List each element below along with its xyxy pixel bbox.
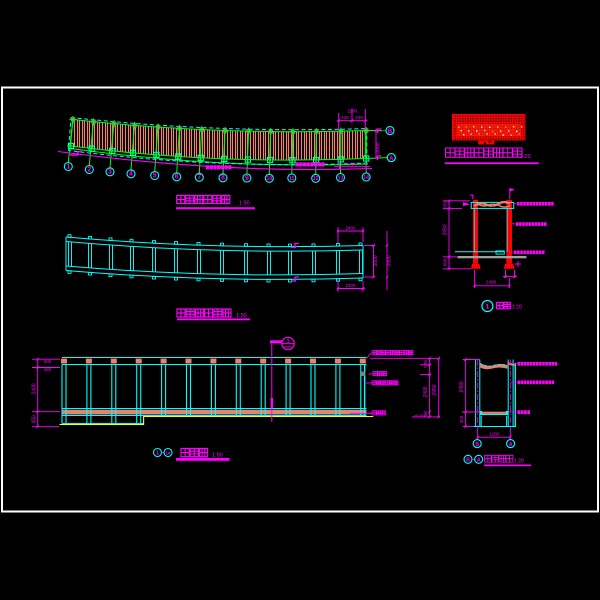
svg-text:500: 500 [44, 359, 52, 364]
svg-text:240: 240 [355, 115, 363, 120]
svg-text:13: 13 [338, 175, 344, 181]
svg-text:2950: 2950 [432, 384, 438, 395]
svg-text:3000: 3000 [373, 255, 379, 266]
svg-text:500: 500 [423, 360, 428, 368]
svg-text:1200: 1200 [489, 431, 500, 436]
svg-text:11: 11 [289, 176, 295, 182]
svg-text:6: 6 [175, 174, 179, 181]
svg-text:±0.000: ±0.000 [414, 414, 427, 419]
svg-text:2400: 2400 [345, 226, 356, 231]
svg-text:A: A [509, 442, 513, 448]
svg-text:4: 4 [129, 171, 133, 178]
svg-text:8: 8 [221, 175, 225, 182]
svg-text:1200: 1200 [347, 109, 358, 114]
svg-text:A: A [477, 458, 481, 464]
svg-text:450: 450 [32, 415, 38, 424]
svg-text:350: 350 [459, 415, 464, 423]
svg-text:1:50: 1:50 [236, 313, 247, 319]
svg-text:14: 14 [165, 451, 171, 456]
svg-text:2400: 2400 [345, 283, 356, 288]
svg-text:2: 2 [87, 166, 91, 173]
svg-text:2450: 2450 [442, 224, 448, 235]
svg-text:240: 240 [341, 115, 349, 120]
svg-text:1:50: 1:50 [212, 453, 223, 459]
svg-text:9: 9 [245, 175, 249, 182]
svg-text:1:50: 1:50 [239, 201, 250, 207]
svg-text:2400: 2400 [459, 381, 465, 392]
svg-text:1: 1 [66, 163, 70, 170]
svg-text:5: 5 [153, 172, 157, 179]
svg-text:2400: 2400 [32, 383, 38, 394]
svg-text:A: A [389, 156, 394, 162]
svg-text:2400: 2400 [486, 280, 497, 285]
svg-text:1: 1 [286, 339, 289, 345]
svg-text:2400: 2400 [347, 162, 357, 167]
svg-text:14: 14 [363, 175, 369, 181]
svg-text:1:20: 1:20 [514, 459, 524, 465]
svg-text:3900: 3900 [387, 255, 393, 266]
svg-text:1: 1 [156, 451, 159, 457]
svg-text:2400: 2400 [423, 386, 429, 397]
svg-text:B: B [466, 458, 470, 464]
svg-text:7: 7 [197, 174, 201, 181]
svg-text:1:20: 1:20 [512, 305, 522, 311]
svg-text:1: 1 [486, 303, 490, 310]
svg-text:B: B [388, 129, 393, 135]
svg-text:3000: 3000 [376, 142, 382, 153]
svg-text:250: 250 [442, 201, 447, 209]
svg-text:3: 3 [108, 169, 112, 176]
svg-text:B: B [475, 442, 479, 448]
svg-text:450: 450 [44, 367, 52, 372]
svg-text:10: 10 [266, 176, 272, 182]
svg-text:12: 12 [313, 176, 319, 182]
svg-text:1:20: 1:20 [520, 154, 531, 160]
svg-text:600: 600 [442, 258, 447, 266]
